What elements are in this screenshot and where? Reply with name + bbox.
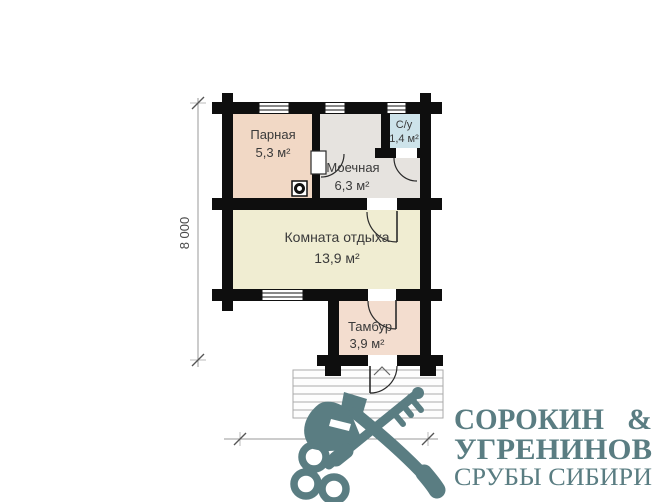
window-moechnaya: [325, 103, 345, 114]
key-collar: [336, 451, 346, 459]
axe-handle-end: [424, 473, 437, 490]
window-su: [387, 103, 406, 114]
window-parnaya: [259, 103, 289, 114]
area-tambur: 3,9 м²: [350, 336, 386, 351]
wall-middle: [212, 198, 442, 210]
wall-left: [222, 93, 233, 311]
label-moechnaya: Моечная: [326, 160, 379, 175]
dim-text-vertical: 8 000: [177, 217, 192, 250]
door-gap-su: [396, 148, 417, 158]
floor-plan-page: Парная 5,3 м² Моечная 6,3 м² С/у 1,4 м² …: [0, 0, 667, 502]
dimension-vertical: [190, 97, 206, 367]
logo-text: СОРОКИН & УГРЕНИНОВ СРУБЫ СИБИРИ: [454, 403, 652, 491]
wall-bottom-main: [212, 289, 442, 301]
area-su: 1,4 м²: [389, 133, 419, 145]
area-komnata: 13,9 м²: [314, 250, 360, 266]
door-leaf-parnaya: [311, 151, 326, 174]
key-bow-ring: [294, 472, 318, 496]
log-end-tambur-left: [325, 366, 341, 376]
door-gap-komnata-tambur: [368, 289, 396, 301]
log-end-tambur-right: [420, 366, 436, 376]
key-bow-ring: [322, 477, 346, 501]
label-parnaya: Парная: [250, 127, 295, 142]
label-komnata: Комната отдыха: [285, 229, 390, 245]
area-parnaya: 5,3 м²: [256, 145, 292, 160]
door-gap-moechnaya-komnata: [367, 198, 397, 210]
logo-name-line1: СОРОКИН: [454, 403, 604, 436]
key-tip-ball: [412, 387, 424, 399]
logo-ampersand: &: [627, 403, 652, 436]
label-tambur: Тамбур: [348, 319, 392, 334]
logo-tagline: СРУБЫ СИБИРИ: [454, 464, 652, 491]
stove-marker: [292, 181, 307, 196]
window-komnata: [262, 290, 303, 301]
logo-name-line2: УГРЕНИНОВ: [454, 433, 652, 466]
label-su: С/у: [396, 119, 413, 131]
area-moechnaya: 6,3 м²: [335, 178, 371, 193]
door-gap-entrance: [368, 355, 397, 366]
key-bow-ring: [302, 445, 326, 469]
wall-right: [420, 93, 431, 376]
floor-plan-drawing: Парная 5,3 м² Моечная 6,3 м² С/у 1,4 м² …: [0, 0, 667, 502]
